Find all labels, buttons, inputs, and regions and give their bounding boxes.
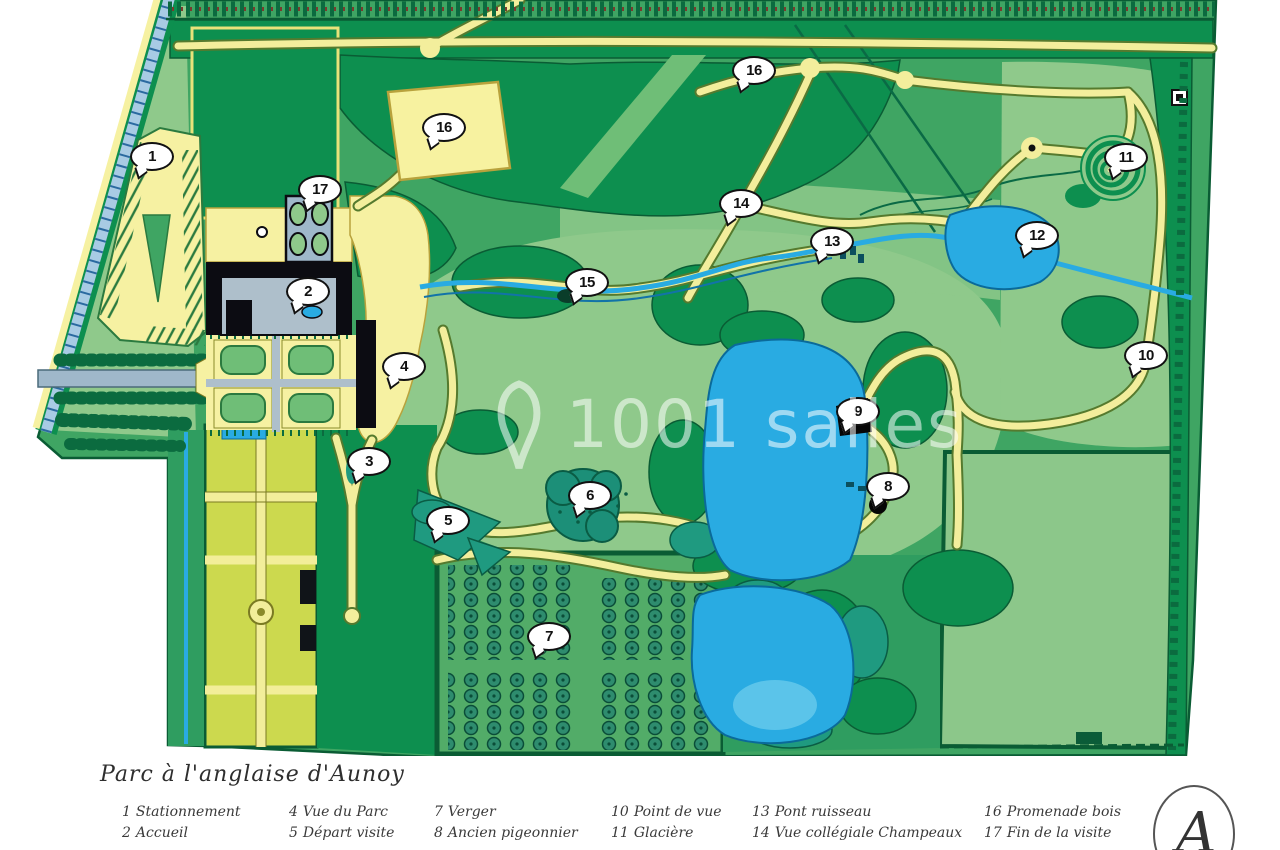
map-marker-14: 14 [719, 189, 763, 218]
marker-number: 1 [148, 148, 156, 165]
marker-number: 16 [746, 62, 762, 79]
legend-column-4: 10Point de vue11Glacière [611, 802, 722, 844]
legend-column-1: 1Stationnement2Accueil [122, 802, 241, 844]
legend-item-1: 1Stationnement [122, 802, 241, 823]
map-marker-5: 5 [426, 506, 470, 535]
map-marker-15: 15 [565, 268, 609, 297]
legend-item-8: 8Ancien pigeonnier [434, 823, 578, 844]
legend-item-14: 14Vue collégiale Champeaux [752, 823, 962, 844]
legend-column-5: 13Pont ruisseau14Vue collégiale Champeau… [752, 802, 962, 844]
marker-number: 17 [312, 181, 328, 198]
legend-item-7: 7Verger [434, 802, 578, 823]
marker-number: 6 [586, 487, 594, 504]
orchard [437, 553, 723, 754]
map-marker-16: 16 [422, 113, 466, 142]
marker-number: 7 [545, 628, 553, 645]
grand-lake [703, 340, 867, 581]
map-marker-17: 17 [298, 175, 342, 204]
legend-item-11: 11Glacière [611, 823, 722, 844]
legend-column-6: 16Promenade bois17Fin de la visite [984, 802, 1121, 844]
map-marker-2: 2 [286, 277, 330, 306]
legend-item-16: 16Promenade bois [984, 802, 1121, 823]
marker-number: 16 [436, 119, 452, 136]
map-marker-16: 16 [732, 56, 776, 85]
map-marker-12: 12 [1015, 221, 1059, 250]
map-marker-6: 6 [568, 481, 612, 510]
marker-number: 5 [444, 512, 452, 529]
legend: Parc à l'anglaise d'Aunoy 1Stationnement… [0, 756, 1280, 850]
monogram-letter: A [1171, 801, 1216, 850]
legend-item-17: 17Fin de la visite [984, 823, 1121, 844]
legend-item-5: 5Départ visite [289, 823, 394, 844]
marker-number: 11 [1119, 149, 1134, 166]
marker-number: 13 [824, 233, 840, 250]
marker-number: 8 [884, 478, 892, 495]
map-marker-9: 9 [836, 397, 880, 426]
chateau-complex [206, 196, 430, 442]
map-marker-1: 1 [130, 142, 174, 171]
marker-number: 4 [400, 358, 408, 375]
park-title: Parc à l'anglaise d'Aunoy [100, 762, 405, 787]
map-marker-7: 7 [527, 622, 571, 651]
marker-number: 12 [1029, 227, 1045, 244]
map-marker-10: 10 [1124, 341, 1168, 370]
marker-number: 10 [1138, 347, 1154, 364]
map-marker-3: 3 [347, 447, 391, 476]
marker-number: 15 [579, 274, 595, 291]
legend-item-10: 10Point de vue [611, 802, 722, 823]
map-marker-8: 8 [866, 472, 910, 501]
map-marker-13: 13 [810, 227, 854, 256]
legend-item-2: 2Accueil [122, 823, 241, 844]
legend-item-4: 4Vue du Parc [289, 802, 394, 823]
marker-number: 3 [365, 453, 373, 470]
parterre-garden [205, 425, 317, 747]
legend-column-3: 7Verger8Ancien pigeonnier [434, 802, 578, 844]
marker-number: 14 [733, 195, 749, 212]
map-marker-11: 11 [1104, 143, 1148, 172]
marker-number: 9 [854, 403, 862, 420]
legend-item-13: 13Pont ruisseau [752, 802, 962, 823]
estate-monogram-logo: A [1150, 782, 1240, 850]
legend-column-2: 4Vue du Parc5Départ visite [289, 802, 394, 844]
marker-number: 2 [304, 283, 312, 300]
park-map [0, 0, 1280, 762]
map-marker-4: 4 [382, 352, 426, 381]
